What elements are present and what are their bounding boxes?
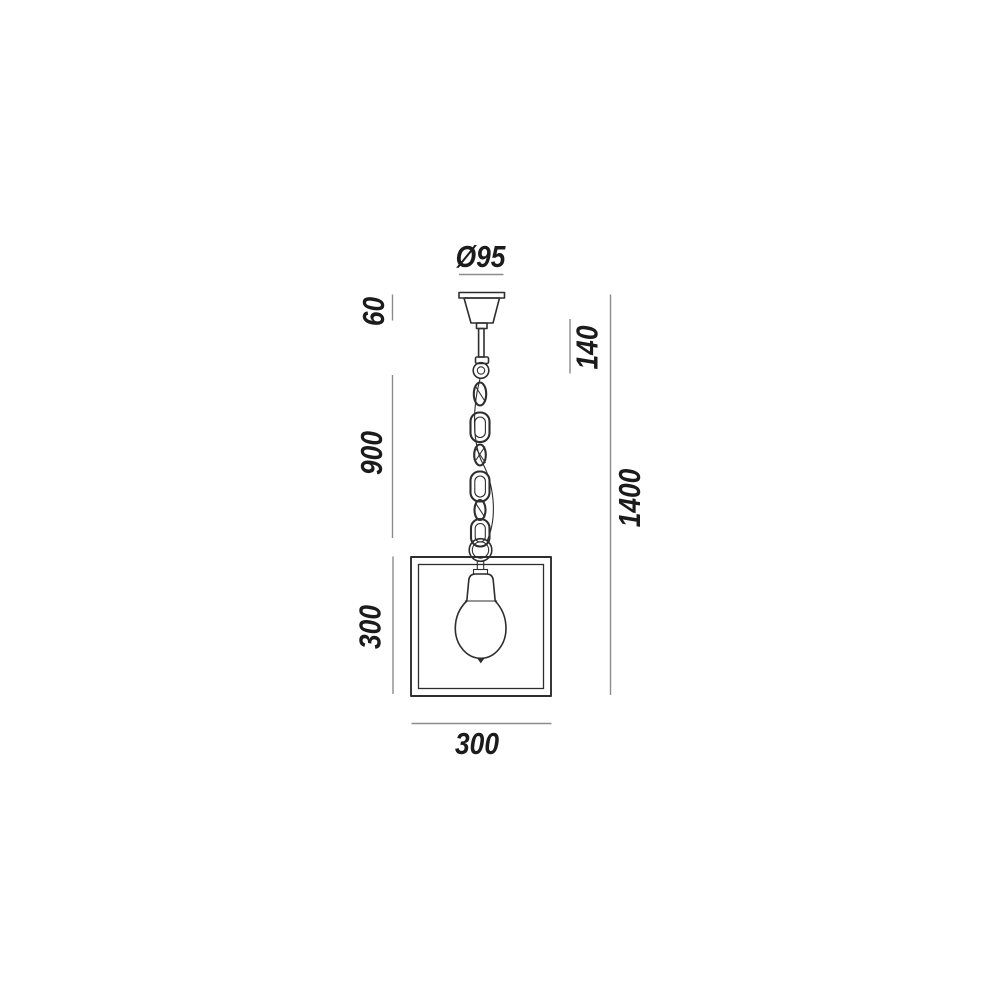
dim-label-chain-length: 900 [355,431,389,475]
ball-joint-detail [477,367,484,374]
ball-joint [473,363,489,379]
chain-ring-inner [472,542,488,558]
technical-drawing-canvas: Ø95 60 900 300 140 1400 300 [0,0,1000,1000]
dim-label-frame-height: 300 [354,605,388,649]
canopy-neck-collar [477,323,488,329]
bulb-tip [477,659,484,664]
pendant-lamp-dimension-diagram: Ø95 60 900 300 140 1400 300 [0,0,1000,1000]
dim-label-suspension-top: 140 [571,326,605,370]
canopy-stem [479,329,484,358]
dim-label-total-height: 1400 [613,469,647,528]
canopy-cup [464,298,500,323]
frame-outer [411,557,551,696]
dim-label-canopy-height: 60 [357,297,391,326]
chain-twist-3 [476,503,486,518]
chain [471,383,490,547]
chain-link-front-1-inner [475,417,486,438]
frame-inner [419,565,544,689]
dimension-labels: Ø95 60 900 300 140 1400 300 [354,240,648,761]
lamp-fixture [411,293,551,697]
dim-label-canopy-diameter: Ø95 [456,240,507,274]
chain-link-front-2-inner [475,476,486,497]
dim-label-frame-width: 300 [455,727,499,761]
ceiling-plate [459,293,505,299]
bulb [455,601,506,658]
lamp-socket [467,574,495,601]
